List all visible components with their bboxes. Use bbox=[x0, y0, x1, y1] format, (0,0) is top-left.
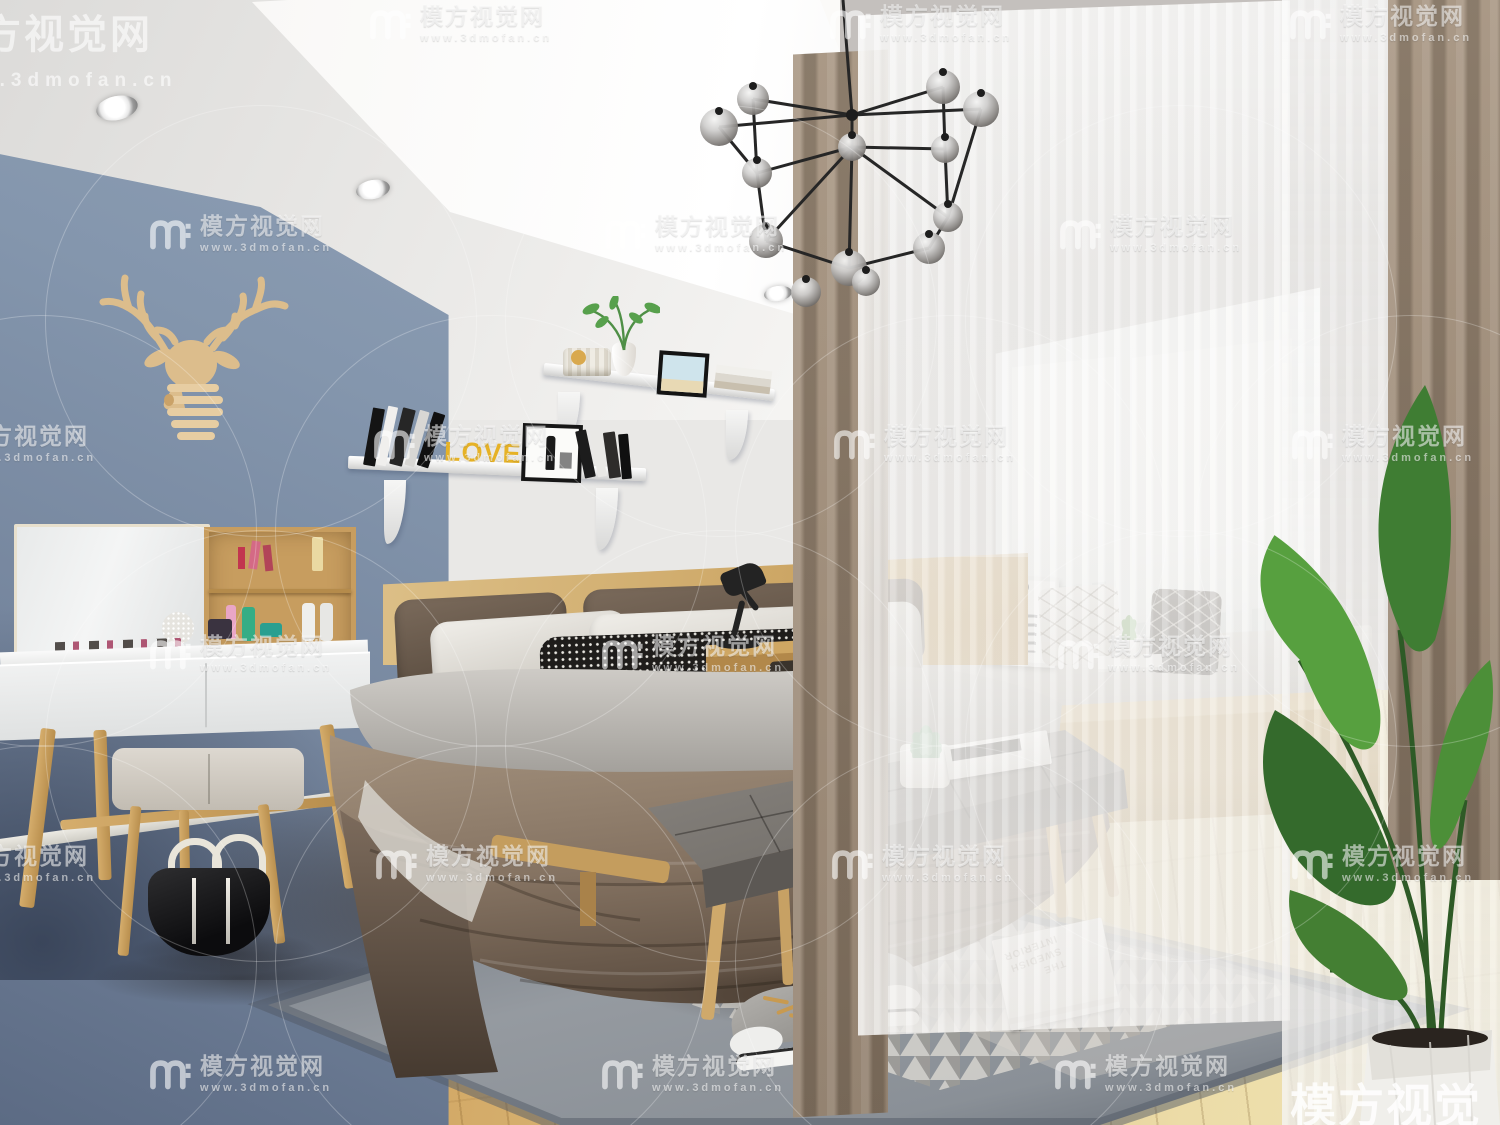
drawer-seam bbox=[205, 663, 207, 727]
cushion-seam bbox=[208, 754, 210, 804]
vanity-stool bbox=[112, 748, 304, 810]
bottle-art-frame bbox=[521, 423, 583, 483]
ball-in-basket bbox=[571, 350, 586, 365]
deer-snout bbox=[164, 394, 174, 406]
floor-plant bbox=[1240, 330, 1500, 1125]
bench-leg bbox=[777, 875, 794, 985]
photo-sand bbox=[661, 379, 704, 394]
dark-pouch bbox=[208, 619, 232, 639]
teal-case bbox=[260, 623, 282, 637]
bag-zipper bbox=[192, 878, 196, 944]
cosmetic-tube bbox=[248, 541, 261, 570]
green-bottle bbox=[242, 607, 255, 641]
bed-leg bbox=[580, 872, 596, 926]
vase-plant bbox=[580, 296, 660, 352]
shelf-divider bbox=[209, 589, 351, 593]
deer-head-decor bbox=[95, 272, 295, 452]
chandelier bbox=[690, 0, 1010, 320]
shelf-bracket bbox=[726, 410, 748, 460]
shelf-bracket bbox=[596, 488, 618, 550]
cosmetic-tube bbox=[263, 545, 274, 572]
beach-photo-frame bbox=[657, 350, 710, 397]
bottle-silhouette bbox=[545, 436, 555, 470]
wire-basket bbox=[563, 348, 611, 376]
bag-zipper bbox=[226, 878, 230, 944]
cosmetic-lipstick bbox=[238, 547, 245, 569]
bedroom-render: LOVE bbox=[0, 0, 1500, 1125]
cosmetic-cream bbox=[312, 537, 323, 571]
glass-silhouette bbox=[559, 452, 572, 468]
